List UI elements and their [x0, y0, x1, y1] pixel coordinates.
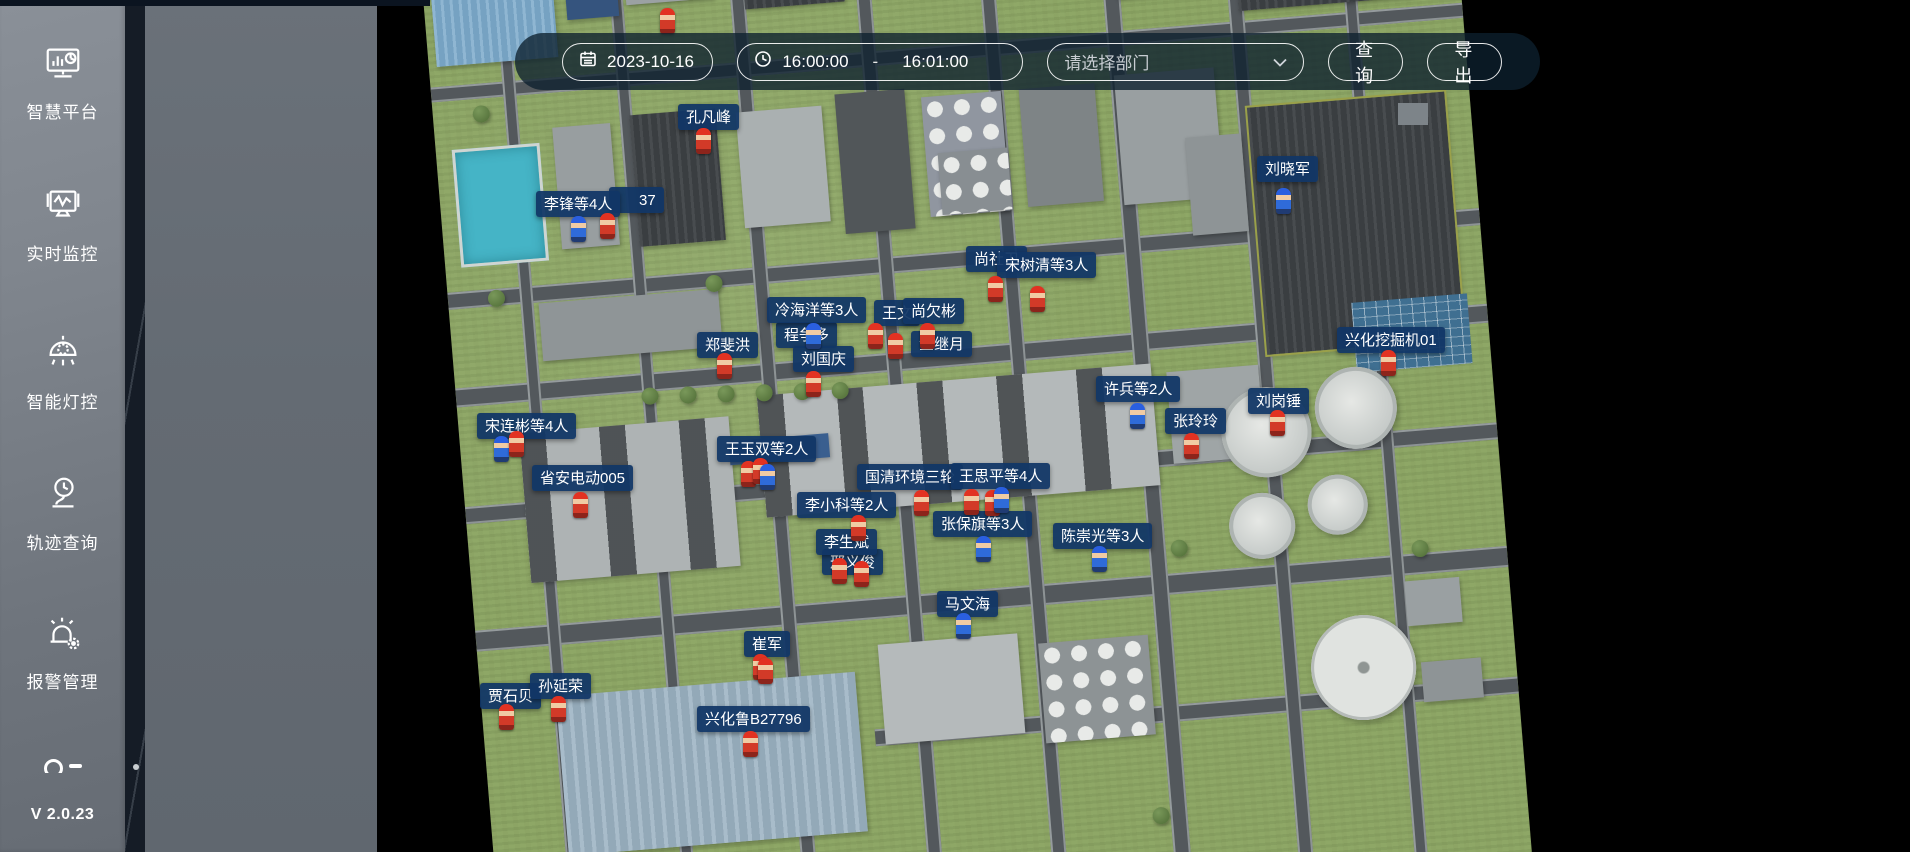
track-query-icon	[0, 473, 125, 515]
person-marker[interactable]	[571, 216, 586, 242]
person-marker[interactable]	[851, 515, 866, 541]
map-overlay: 37李锋等4人孔凡峰刘晓军尚社卫宋树清等3人程争多冷海洋等3人王文尚欠彬郑斐洪金…	[0, 0, 1910, 852]
sidebar-item-realtime-monitor[interactable]: 实时监控	[0, 184, 125, 265]
person-marker[interactable]	[1270, 410, 1285, 436]
person-marker[interactable]	[1184, 433, 1199, 459]
clock-icon	[754, 50, 772, 73]
person-marker[interactable]	[956, 613, 971, 639]
app-root: 37李锋等4人孔凡峰刘晓军尚社卫宋树清等3人程争多冷海洋等3人王文尚欠彬郑斐洪金…	[0, 0, 1910, 852]
time-start-value: 16:00:00	[782, 52, 848, 72]
person-marker[interactable]	[1130, 403, 1145, 429]
person-marker[interactable]	[806, 323, 821, 349]
person-marker[interactable]	[920, 323, 935, 349]
person-label[interactable]: 陈崇光等3人	[1053, 523, 1152, 549]
sidebar: 智慧平台 实时监控 智能灯控	[0, 0, 125, 852]
person-marker[interactable]	[1276, 188, 1291, 214]
department-placeholder: 请选择部门	[1064, 49, 1149, 74]
date-picker[interactable]: 2023-10-16	[562, 43, 713, 81]
person-marker[interactable]	[499, 704, 514, 730]
person-label[interactable]: 国清环境三轮	[857, 464, 963, 490]
person-label[interactable]: 省安电动005	[532, 465, 633, 491]
person-marker[interactable]	[1092, 546, 1107, 572]
sidebar-item-label: 报警管理	[0, 668, 125, 693]
person-marker[interactable]	[868, 323, 883, 349]
person-marker[interactable]	[660, 8, 675, 34]
person-label[interactable]: 兴化鲁B27796	[697, 706, 810, 732]
sidebar-item-alarm-manage[interactable]: 报警管理	[0, 612, 125, 693]
person-marker[interactable]	[494, 436, 509, 462]
user-partial-icon-dash	[69, 764, 82, 768]
person-marker[interactable]	[854, 561, 869, 587]
time-end-value: 16:01:00	[902, 52, 968, 72]
person-marker[interactable]	[509, 431, 524, 457]
chevron-down-icon	[1273, 52, 1287, 72]
person-marker[interactable]	[976, 536, 991, 562]
person-label[interactable]: 崔军	[744, 631, 790, 657]
top-edge	[0, 0, 430, 6]
dashboard-monitor-icon	[0, 42, 125, 84]
time-range-picker[interactable]: 16:00:00 - 16:01:00	[737, 43, 1023, 81]
person-marker[interactable]	[994, 487, 1009, 513]
sidebar-item-label: 轨迹查询	[0, 529, 125, 554]
person-marker[interactable]	[914, 490, 929, 516]
person-label[interactable]: 刘晓军	[1257, 156, 1318, 182]
person-label[interactable]: 李小科等2人	[797, 492, 896, 518]
person-label[interactable]: 尚欠彬	[903, 298, 964, 324]
person-label[interactable]: 冷海洋等3人	[767, 297, 866, 323]
alarm-manage-icon	[0, 612, 125, 654]
person-marker[interactable]	[964, 489, 979, 515]
person-label[interactable]: 张玲玲	[1165, 408, 1226, 434]
person-label[interactable]: 兴化挖掘机01	[1337, 327, 1445, 353]
sidebar-item-label: 智慧平台	[0, 98, 125, 123]
date-value: 2023-10-16	[607, 52, 694, 72]
export-button[interactable]: 导 出	[1427, 43, 1502, 81]
person-marker[interactable]	[806, 371, 821, 397]
person-label[interactable]: 孙延荣	[530, 673, 591, 699]
sidebar-item-track-query[interactable]: 轨迹查询	[0, 473, 125, 554]
person-label[interactable]: 王思平等4人	[951, 463, 1050, 489]
person-marker[interactable]	[758, 658, 773, 684]
person-marker[interactable]	[743, 731, 758, 757]
person-marker[interactable]	[1030, 286, 1045, 312]
person-marker[interactable]	[888, 333, 903, 359]
query-button[interactable]: 查 询	[1328, 43, 1403, 81]
person-label[interactable]: 王玉双等2人	[717, 436, 816, 462]
sidebar-item-label: 智能灯控	[0, 388, 125, 413]
person-label[interactable]: 刘国庆	[793, 346, 854, 372]
person-label[interactable]: 宋树清等3人	[997, 252, 1096, 278]
sidebar-item-partial[interactable]	[0, 756, 125, 773]
person-label[interactable]: 李生斌	[816, 529, 877, 555]
person-marker[interactable]	[988, 276, 1003, 302]
version-label: V 2.0.23	[0, 806, 125, 824]
person-marker[interactable]	[600, 213, 615, 239]
person-marker[interactable]	[573, 492, 588, 518]
person-label[interactable]: 孔凡峰	[678, 104, 739, 130]
person-marker[interactable]	[717, 353, 732, 379]
time-separator: -	[873, 52, 879, 72]
person-label[interactable]: 宋连彬等4人	[477, 413, 576, 439]
sidebar-item-smart-platform[interactable]: 智慧平台	[0, 42, 125, 123]
sidebar-item-smart-light[interactable]: 智能灯控	[0, 332, 125, 413]
calendar-icon	[579, 50, 597, 73]
realtime-monitor-icon	[0, 184, 125, 226]
sidebar-item-label: 实时监控	[0, 240, 125, 265]
person-marker[interactable]	[832, 558, 847, 584]
user-partial-icon	[44, 759, 63, 773]
person-marker[interactable]	[696, 128, 711, 154]
person-label[interactable]: 许兵等2人	[1096, 376, 1180, 402]
filter-toolbar: 2023-10-16 16:00:00 - 16:01:00 请选择部门 查 询…	[515, 33, 1540, 90]
smart-light-icon	[0, 332, 125, 374]
person-marker[interactable]	[551, 696, 566, 722]
person-marker[interactable]	[1381, 350, 1396, 376]
person-label[interactable]: 张保旗等3人	[933, 511, 1032, 537]
person-marker[interactable]	[760, 464, 775, 490]
department-select[interactable]: 请选择部门	[1047, 43, 1303, 81]
